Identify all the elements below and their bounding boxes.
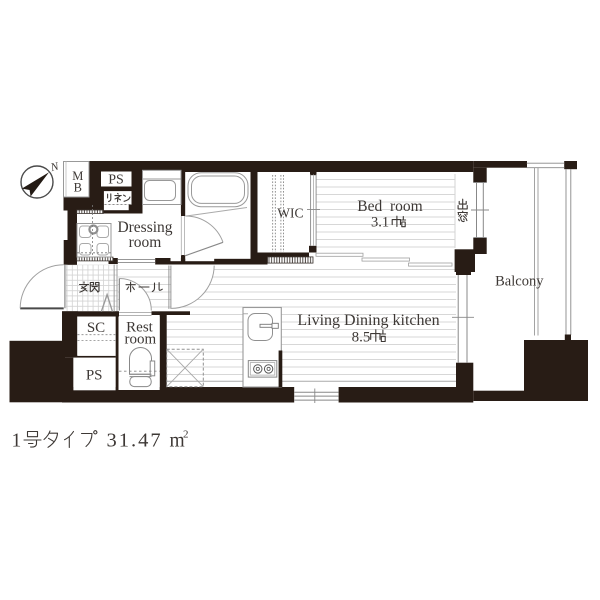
svg-text:Living Dining kitchen: Living Dining kitchen — [297, 312, 439, 329]
svg-text:PS: PS — [108, 172, 124, 187]
svg-text:Balcony: Balcony — [495, 273, 544, 289]
svg-text:room: room — [124, 331, 156, 347]
svg-text:PS: PS — [86, 368, 103, 384]
svg-text:WIC: WIC — [277, 206, 303, 221]
svg-text:8.5: 8.5 — [352, 329, 371, 345]
svg-text:1: 1 — [12, 431, 22, 452]
svg-text:B: B — [74, 180, 82, 194]
svg-text:SC: SC — [87, 320, 105, 336]
svg-text:3.1: 3.1 — [371, 214, 389, 230]
svg-text:2: 2 — [183, 429, 189, 441]
svg-text:room: room — [129, 234, 162, 251]
svg-text:31.47: 31.47 — [107, 430, 163, 452]
svg-text:Bed room: Bed room — [357, 198, 422, 215]
